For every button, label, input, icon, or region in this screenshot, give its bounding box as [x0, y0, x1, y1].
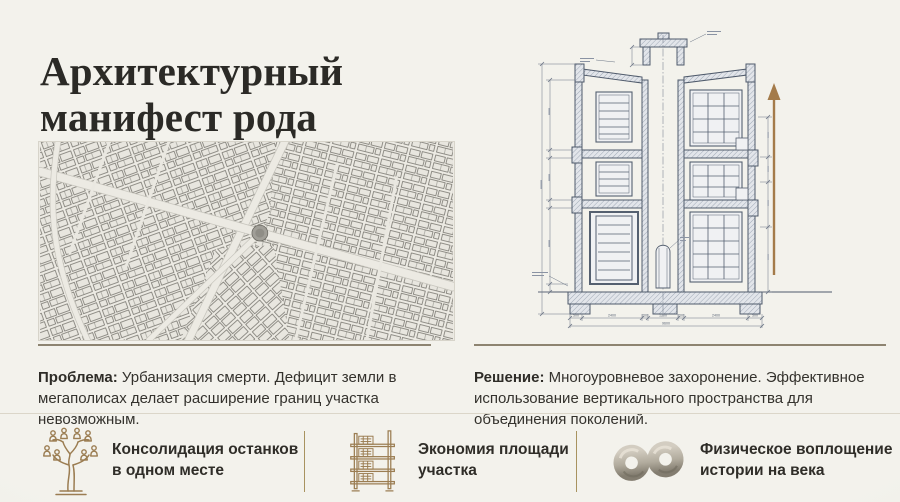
family-tree-icon: [42, 427, 100, 497]
benefit-3-line1: Физическое воплощение: [700, 441, 892, 458]
city-map-svg: [39, 142, 454, 340]
dim-label: 2400: [712, 314, 720, 318]
problem-label: Проблема:: [38, 369, 118, 386]
benefit-3-line2: истории на века: [700, 462, 824, 479]
solution-label: Решение:: [474, 369, 544, 386]
dim-label: 1200: [659, 314, 667, 318]
dim-label: 200: [642, 314, 648, 318]
page-title-line1: Архитектурный: [40, 48, 343, 94]
upward-arrow-icon: [768, 83, 781, 275]
left-tower-shelf-panels: [590, 92, 638, 284]
benefit-2-line2: участка: [418, 462, 477, 479]
dim-label: 2400: [608, 314, 616, 318]
benefit-divider-2: [576, 431, 577, 492]
benefit-2-label: Экономия площадиучастка: [418, 440, 569, 482]
right-tower-grid-panels: [690, 90, 748, 282]
benefit-1-line1: Консолидация останков: [112, 441, 298, 458]
left-column-divider: [38, 344, 431, 346]
benefit-1-label: Консолидация останковв одном месте: [112, 440, 298, 482]
page-title-line2: манифест рода: [40, 94, 317, 140]
dim-label: 200: [678, 314, 684, 318]
solution-paragraph: Решение: Многоуровневое захоронение. Эфф…: [474, 367, 890, 430]
bottom-strip-divider: [0, 413, 900, 414]
dimension-labels: 500 2400 200 1200 200 2400 500 9600: [573, 314, 758, 326]
building-section-svg: 500 2400 200 1200 200 2400 500 9600: [520, 22, 890, 334]
page-title: Архитектурныйманифест рода: [40, 49, 470, 139]
infinity-stone-icon: [610, 438, 688, 484]
benefit-3-label: Физическое воплощениеистории на века: [700, 440, 892, 482]
building-section-drawing: 500 2400 200 1200 200 2400 500 9600: [520, 22, 890, 337]
city-map-illustration: [38, 141, 455, 341]
dim-label: 500: [752, 314, 758, 318]
slide-architectural-manifesto: { "header": { "title_line1": "Архитектур…: [0, 0, 900, 502]
dim-total-label: 9600: [662, 322, 670, 326]
benefit-2-line1: Экономия площади: [418, 441, 569, 458]
problem-paragraph: Проблема: Урбанизация смерти. Дефицит зе…: [38, 367, 446, 430]
dim-label: 500: [573, 314, 579, 318]
shelf-rack-icon: [344, 430, 402, 494]
right-column-divider: [474, 344, 886, 346]
benefit-divider-1: [304, 431, 305, 492]
benefit-1-line2: в одном месте: [112, 462, 224, 479]
